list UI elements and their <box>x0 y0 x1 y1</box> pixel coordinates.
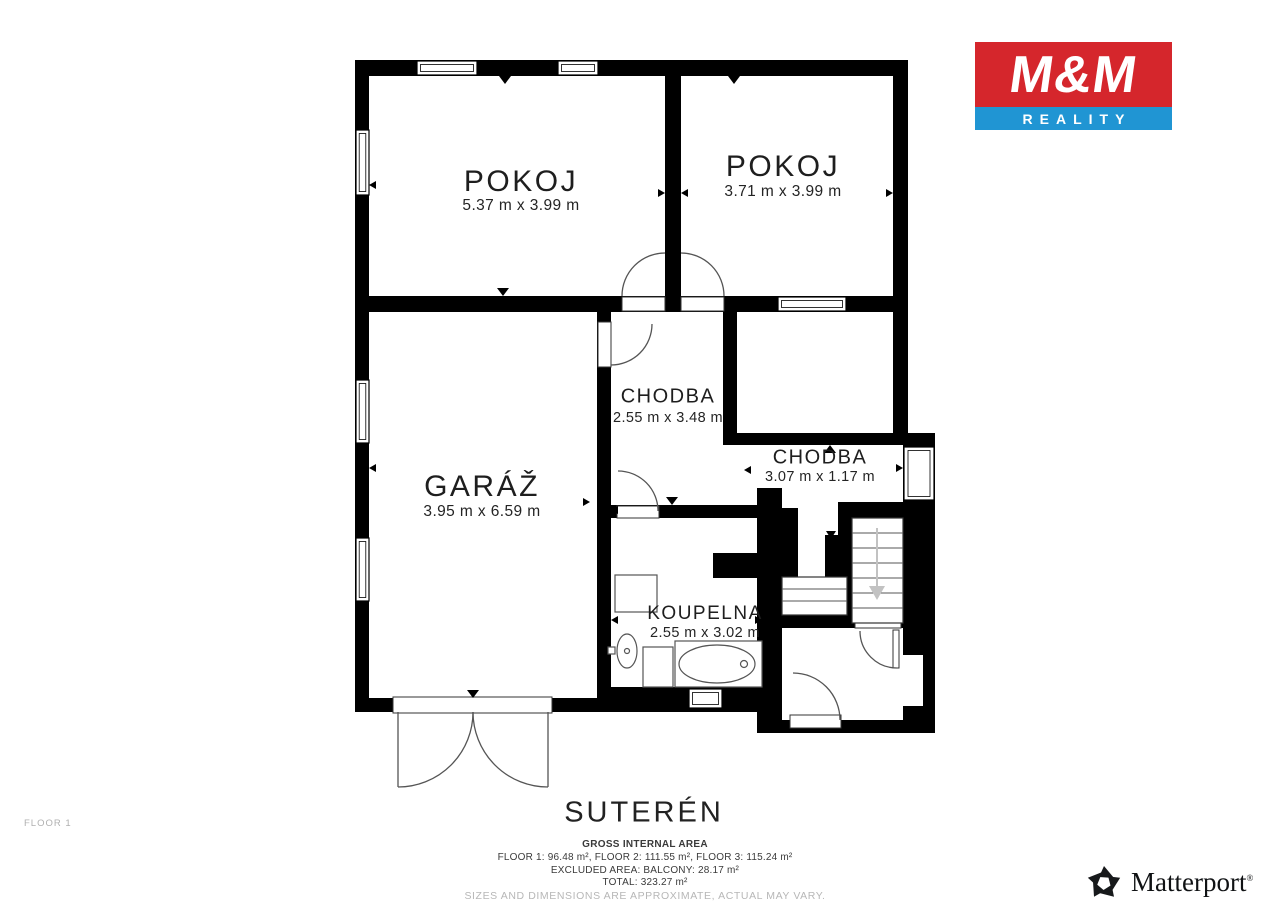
room-name: GARÁŽ <box>424 470 540 504</box>
room-dims-koupelna: 2.55 m x 3.02 m <box>650 625 760 641</box>
garage-door <box>393 697 552 787</box>
room-dims-pokoj-right: 3.71 m x 3.99 m <box>724 183 841 201</box>
registered-mark: ® <box>1246 873 1253 883</box>
room-label-chodba-1: CHODBA <box>621 386 716 409</box>
window <box>778 297 846 311</box>
total-area-line: TOTAL: 323.27 m² <box>345 877 945 888</box>
door <box>681 253 724 311</box>
room-label-pokoj-left: POKOJ <box>464 165 578 199</box>
room-label-garaz: GARÁŽ <box>424 470 540 504</box>
floor-areas-line: FLOOR 1: 96.48 m², FLOOR 2: 111.55 m², F… <box>345 852 945 863</box>
gross-area-heading: GROSS INTERNAL AREA <box>345 839 945 850</box>
window <box>689 689 722 708</box>
wall-opening <box>903 655 923 706</box>
room-name: KOUPELNA <box>647 603 762 625</box>
floor-title: SUTERÉN <box>564 797 724 830</box>
room-label-chodba-2: CHODBA <box>773 447 868 470</box>
room-dims-chodba-1: 2.55 m x 3.48 m <box>613 410 723 426</box>
room-name: POKOJ <box>464 165 578 199</box>
floor-plan-drawing <box>0 0 1280 905</box>
window <box>356 538 369 601</box>
mm-reality-logo: M&M REALITY <box>975 42 1172 130</box>
area-summary: GROSS INTERNAL AREA FLOOR 1: 96.48 m², F… <box>345 839 945 902</box>
matterport-logo: Matterport® <box>1083 860 1253 904</box>
excluded-area-line: EXCLUDED AREA: BALCONY: 28.17 m² <box>345 865 945 876</box>
room-name: CHODBA <box>621 386 716 409</box>
sink <box>608 634 637 668</box>
room-name: POKOJ <box>726 150 840 184</box>
window <box>904 447 934 500</box>
matterport-pinwheel-icon <box>1083 860 1125 904</box>
window <box>417 61 477 75</box>
room-dims-pokoj-left: 5.37 m x 3.99 m <box>462 197 579 215</box>
door <box>860 630 899 668</box>
floor-tag: FLOOR 1 <box>24 818 72 829</box>
door <box>790 673 841 728</box>
door <box>598 322 652 367</box>
room-name: CHODBA <box>773 447 868 470</box>
window <box>356 130 369 195</box>
bathtub <box>675 641 762 687</box>
disclaimer-text: SIZES AND DIMENSIONS ARE APPROXIMATE, AC… <box>345 890 945 902</box>
matterport-wordmark: Matterport® <box>1131 867 1253 898</box>
room-label-pokoj-right: POKOJ <box>726 150 840 184</box>
window <box>356 380 369 443</box>
room-label-koupelna: KOUPELNA <box>647 603 762 625</box>
room-dims-garaz: 3.95 m x 6.59 m <box>423 503 540 521</box>
door <box>617 471 659 518</box>
mm-logo-mark: M&M <box>975 42 1172 107</box>
room-dims-chodba-2: 3.07 m x 1.17 m <box>765 469 875 485</box>
mm-logo-subtitle-bar: REALITY <box>975 107 1172 130</box>
cabinet <box>643 647 673 687</box>
door <box>622 253 665 311</box>
window <box>558 61 598 75</box>
floor-plan-page: POKOJ 5.37 m x 3.99 m POKOJ 3.71 m x 3.9… <box>0 0 1280 905</box>
